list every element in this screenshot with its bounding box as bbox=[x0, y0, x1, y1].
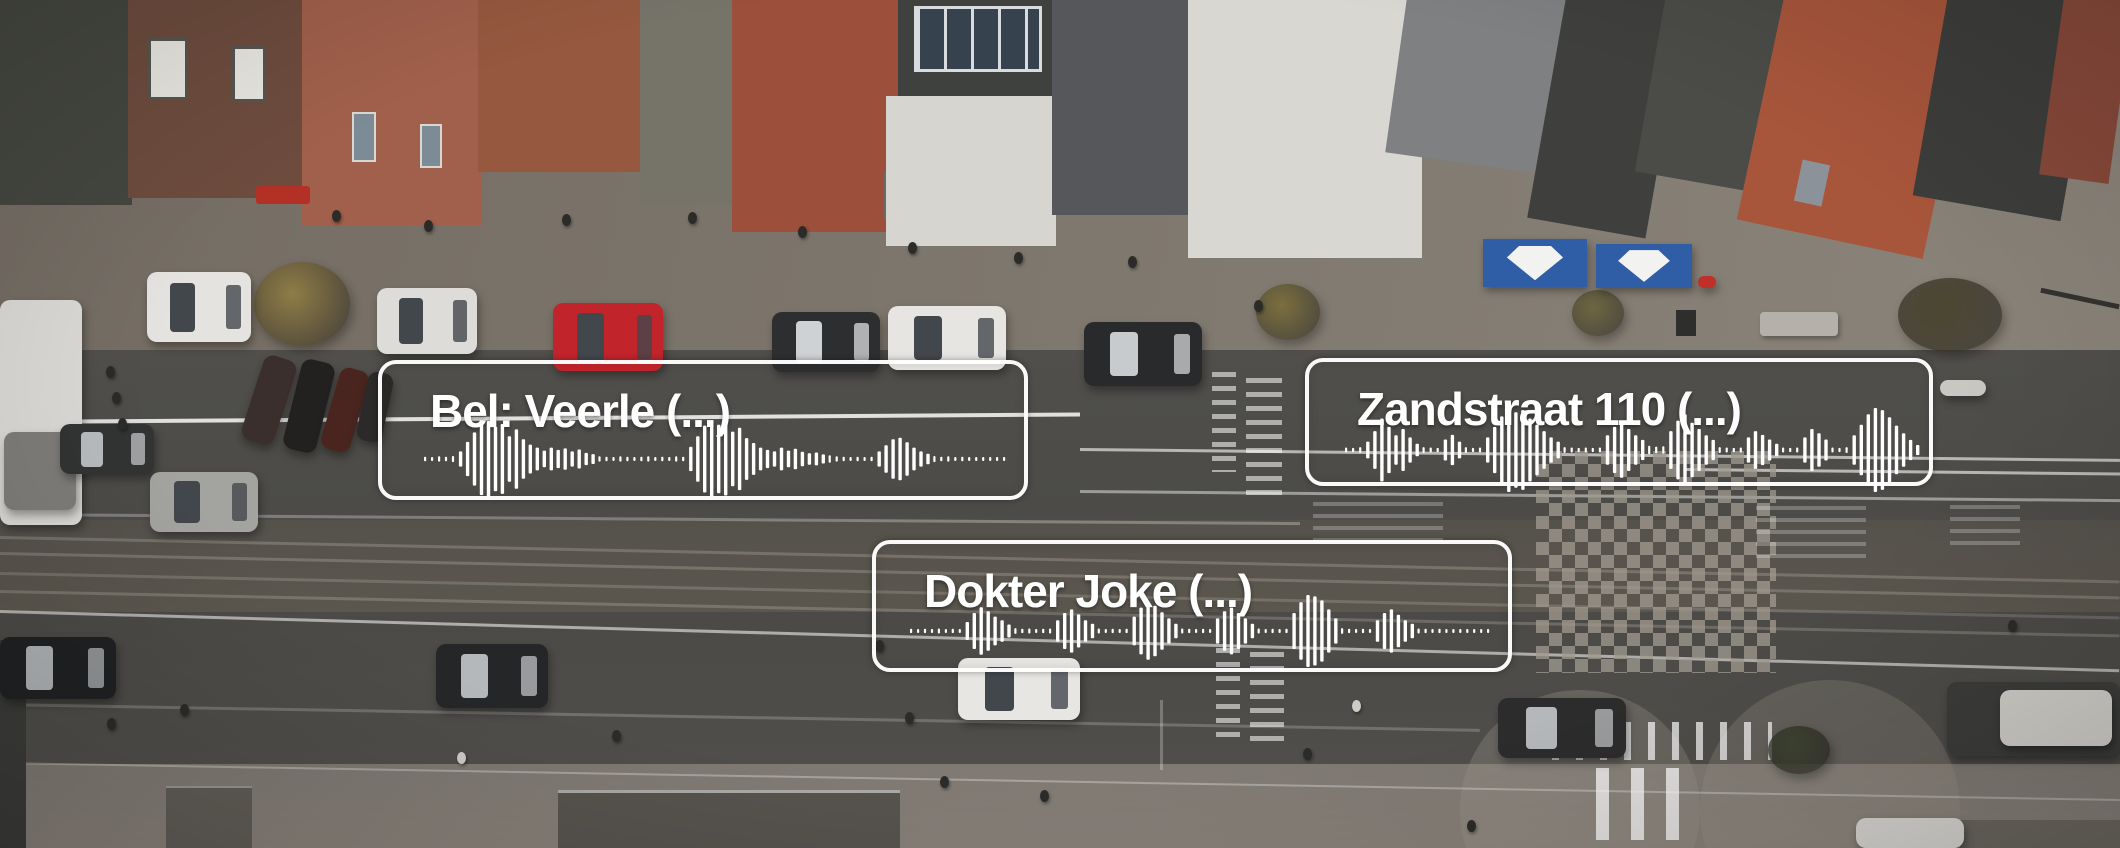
pedestrian bbox=[1128, 256, 1137, 268]
pedestrian bbox=[1040, 790, 1049, 802]
pedestrian bbox=[905, 712, 914, 724]
callout-dokter-joke: Dokter Joke (...) bbox=[872, 540, 1512, 672]
callout-zandstraat: Zandstraat 110 (...) bbox=[1305, 358, 1933, 486]
pedestrian bbox=[1467, 820, 1476, 832]
pedestrian bbox=[118, 418, 127, 430]
pedestrian bbox=[180, 704, 189, 716]
pedestrian bbox=[908, 242, 917, 254]
pedestrian bbox=[332, 210, 341, 222]
aerial-street-video-frame: Bel: Veerle (...) Zandstraat 110 (...) D… bbox=[0, 0, 2120, 848]
pedestrian bbox=[424, 220, 433, 232]
pedestrian bbox=[1352, 700, 1361, 712]
pedestrian bbox=[940, 776, 949, 788]
pedestrian bbox=[2008, 620, 2017, 632]
pedestrian bbox=[106, 366, 115, 378]
callout-bel-veerle: Bel: Veerle (...) bbox=[378, 360, 1028, 500]
audio-waveform bbox=[1345, 405, 1923, 495]
pedestrian bbox=[457, 752, 466, 764]
pedestrian bbox=[1254, 300, 1263, 312]
pedestrian bbox=[112, 392, 121, 404]
audio-waveform bbox=[910, 586, 1494, 676]
pedestrian bbox=[1014, 252, 1023, 264]
audio-waveform bbox=[424, 414, 1010, 504]
pedestrian bbox=[612, 730, 621, 742]
pedestrian bbox=[107, 718, 116, 730]
pedestrian bbox=[562, 214, 571, 226]
pedestrian bbox=[1303, 748, 1312, 760]
pedestrian bbox=[798, 226, 807, 238]
pedestrian bbox=[688, 212, 697, 224]
